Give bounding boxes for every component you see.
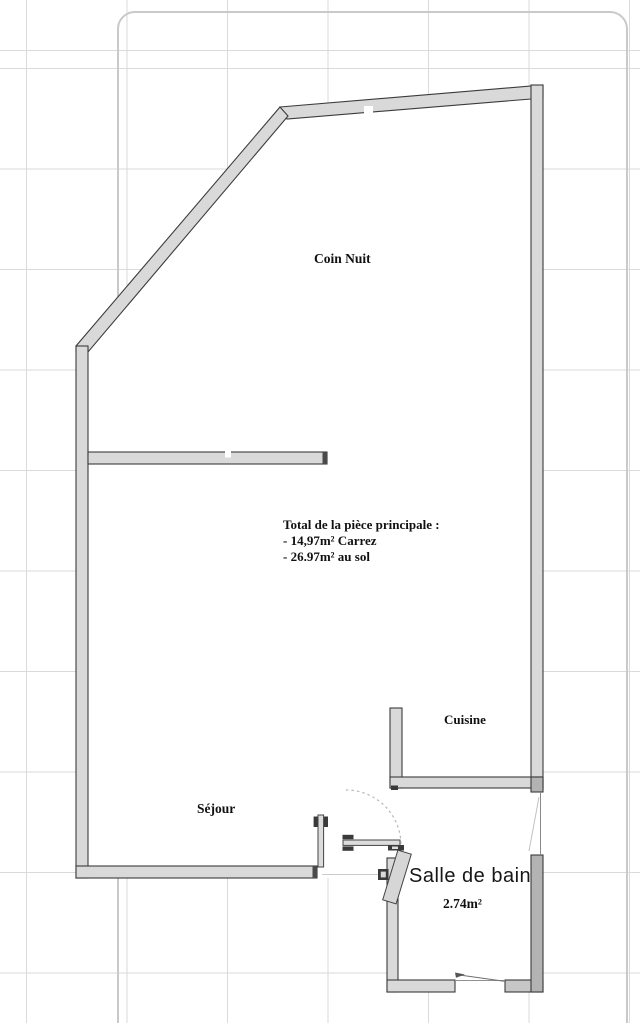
wall-cap-sejour <box>313 866 318 878</box>
door-jamb-block-center <box>381 872 386 878</box>
room-label-cuisine: Cuisine <box>444 713 486 728</box>
door-leaf-horizontal <box>343 840 400 845</box>
door-leaf-entry <box>318 815 324 867</box>
wall-cap-partition <box>323 452 328 464</box>
total-area-carrez: - 14,97m² Carrez <box>283 533 440 549</box>
room-label-salle-de-bain: Salle de bain <box>409 865 531 888</box>
wall-cuisine-bottom <box>390 777 543 788</box>
wall-bottom-sejour <box>76 866 317 878</box>
wall-stub-tick <box>391 786 398 791</box>
room-label-sejour: Séjour <box>197 801 235 817</box>
total-area-title: Total de la pièce principale : <box>283 517 440 533</box>
door-hinge-horizontal-bottom <box>343 846 354 850</box>
floorplan-image: Coin Nuit Total de la pièce principale :… <box>0 0 640 1023</box>
wall-right-upper <box>531 85 543 789</box>
wall-notch-top <box>364 106 373 114</box>
wall-right-lower <box>531 855 543 992</box>
door-hinge-entry-right <box>324 817 328 828</box>
total-area-note: Total de la pièce principale : - 14,97m²… <box>283 517 440 565</box>
door-hinge-bathroom-gap <box>392 847 398 850</box>
wall-right-cuisine-corner <box>531 777 543 792</box>
total-area-au-sol: - 26.97m² au sol <box>283 549 440 565</box>
room-label-coin-nuit: Coin Nuit <box>314 251 371 267</box>
wall-bathroom-bottom-left <box>387 980 455 992</box>
wall-notch-partition <box>225 451 231 458</box>
wall-partition <box>88 452 327 464</box>
room-area-salle-de-bain: 2.74m² <box>443 896 482 912</box>
door-hinge-entry-left <box>314 817 318 828</box>
wall-left <box>76 346 88 878</box>
door-hinge-horizontal-top <box>343 835 354 839</box>
floorplan-drawing <box>0 0 640 1023</box>
wall-cuisine-stub <box>390 708 402 788</box>
